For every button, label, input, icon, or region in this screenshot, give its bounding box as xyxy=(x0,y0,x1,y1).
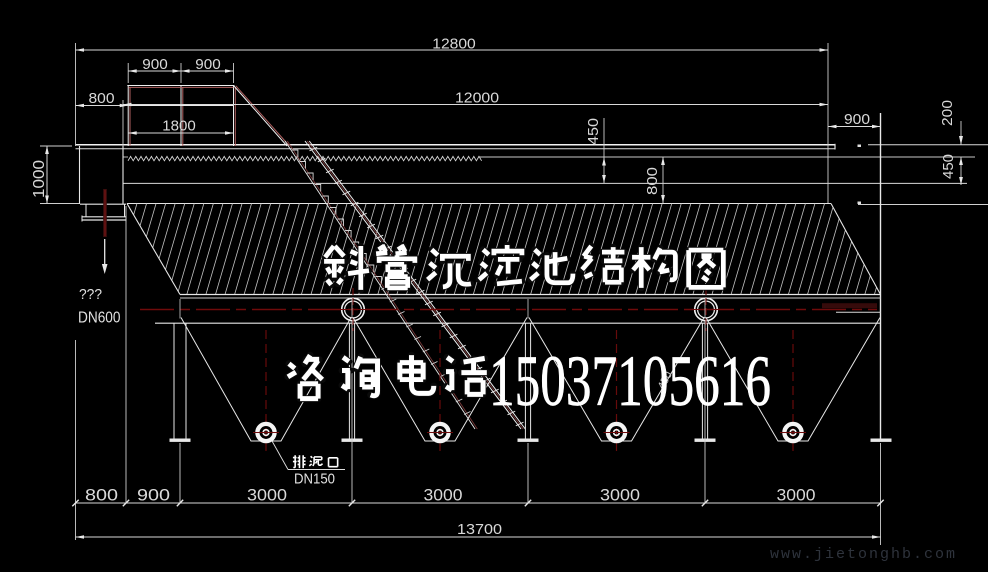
svg-text:12800: 12800 xyxy=(432,36,476,53)
svg-text:900: 900 xyxy=(195,56,221,73)
svg-text:800: 800 xyxy=(89,90,115,107)
svg-text:1000: 1000 xyxy=(31,160,48,198)
svg-text:www.jietonghb.com: www.jietonghb.com xyxy=(770,546,957,563)
svg-text:13700: 13700 xyxy=(457,521,502,538)
svg-text:3000: 3000 xyxy=(424,486,463,505)
svg-text:3000: 3000 xyxy=(247,486,287,505)
svg-text:450: 450 xyxy=(940,154,957,179)
svg-text:???: ??? xyxy=(79,286,102,303)
svg-text:1800: 1800 xyxy=(162,118,196,135)
svg-text:900: 900 xyxy=(844,111,870,128)
svg-text:900: 900 xyxy=(137,486,170,505)
svg-text:15037105616: 15037105616 xyxy=(489,341,771,421)
svg-text:200: 200 xyxy=(939,100,956,126)
svg-text:800: 800 xyxy=(85,486,118,505)
svg-text:12000: 12000 xyxy=(455,90,499,107)
svg-text:800: 800 xyxy=(644,167,661,195)
svg-text:3000: 3000 xyxy=(600,486,640,505)
svg-text:DN150: DN150 xyxy=(294,471,335,488)
svg-text:3000: 3000 xyxy=(777,486,816,505)
svg-text:450: 450 xyxy=(585,118,602,145)
svg-text:900: 900 xyxy=(142,56,168,73)
svg-text:DN600: DN600 xyxy=(78,310,121,327)
